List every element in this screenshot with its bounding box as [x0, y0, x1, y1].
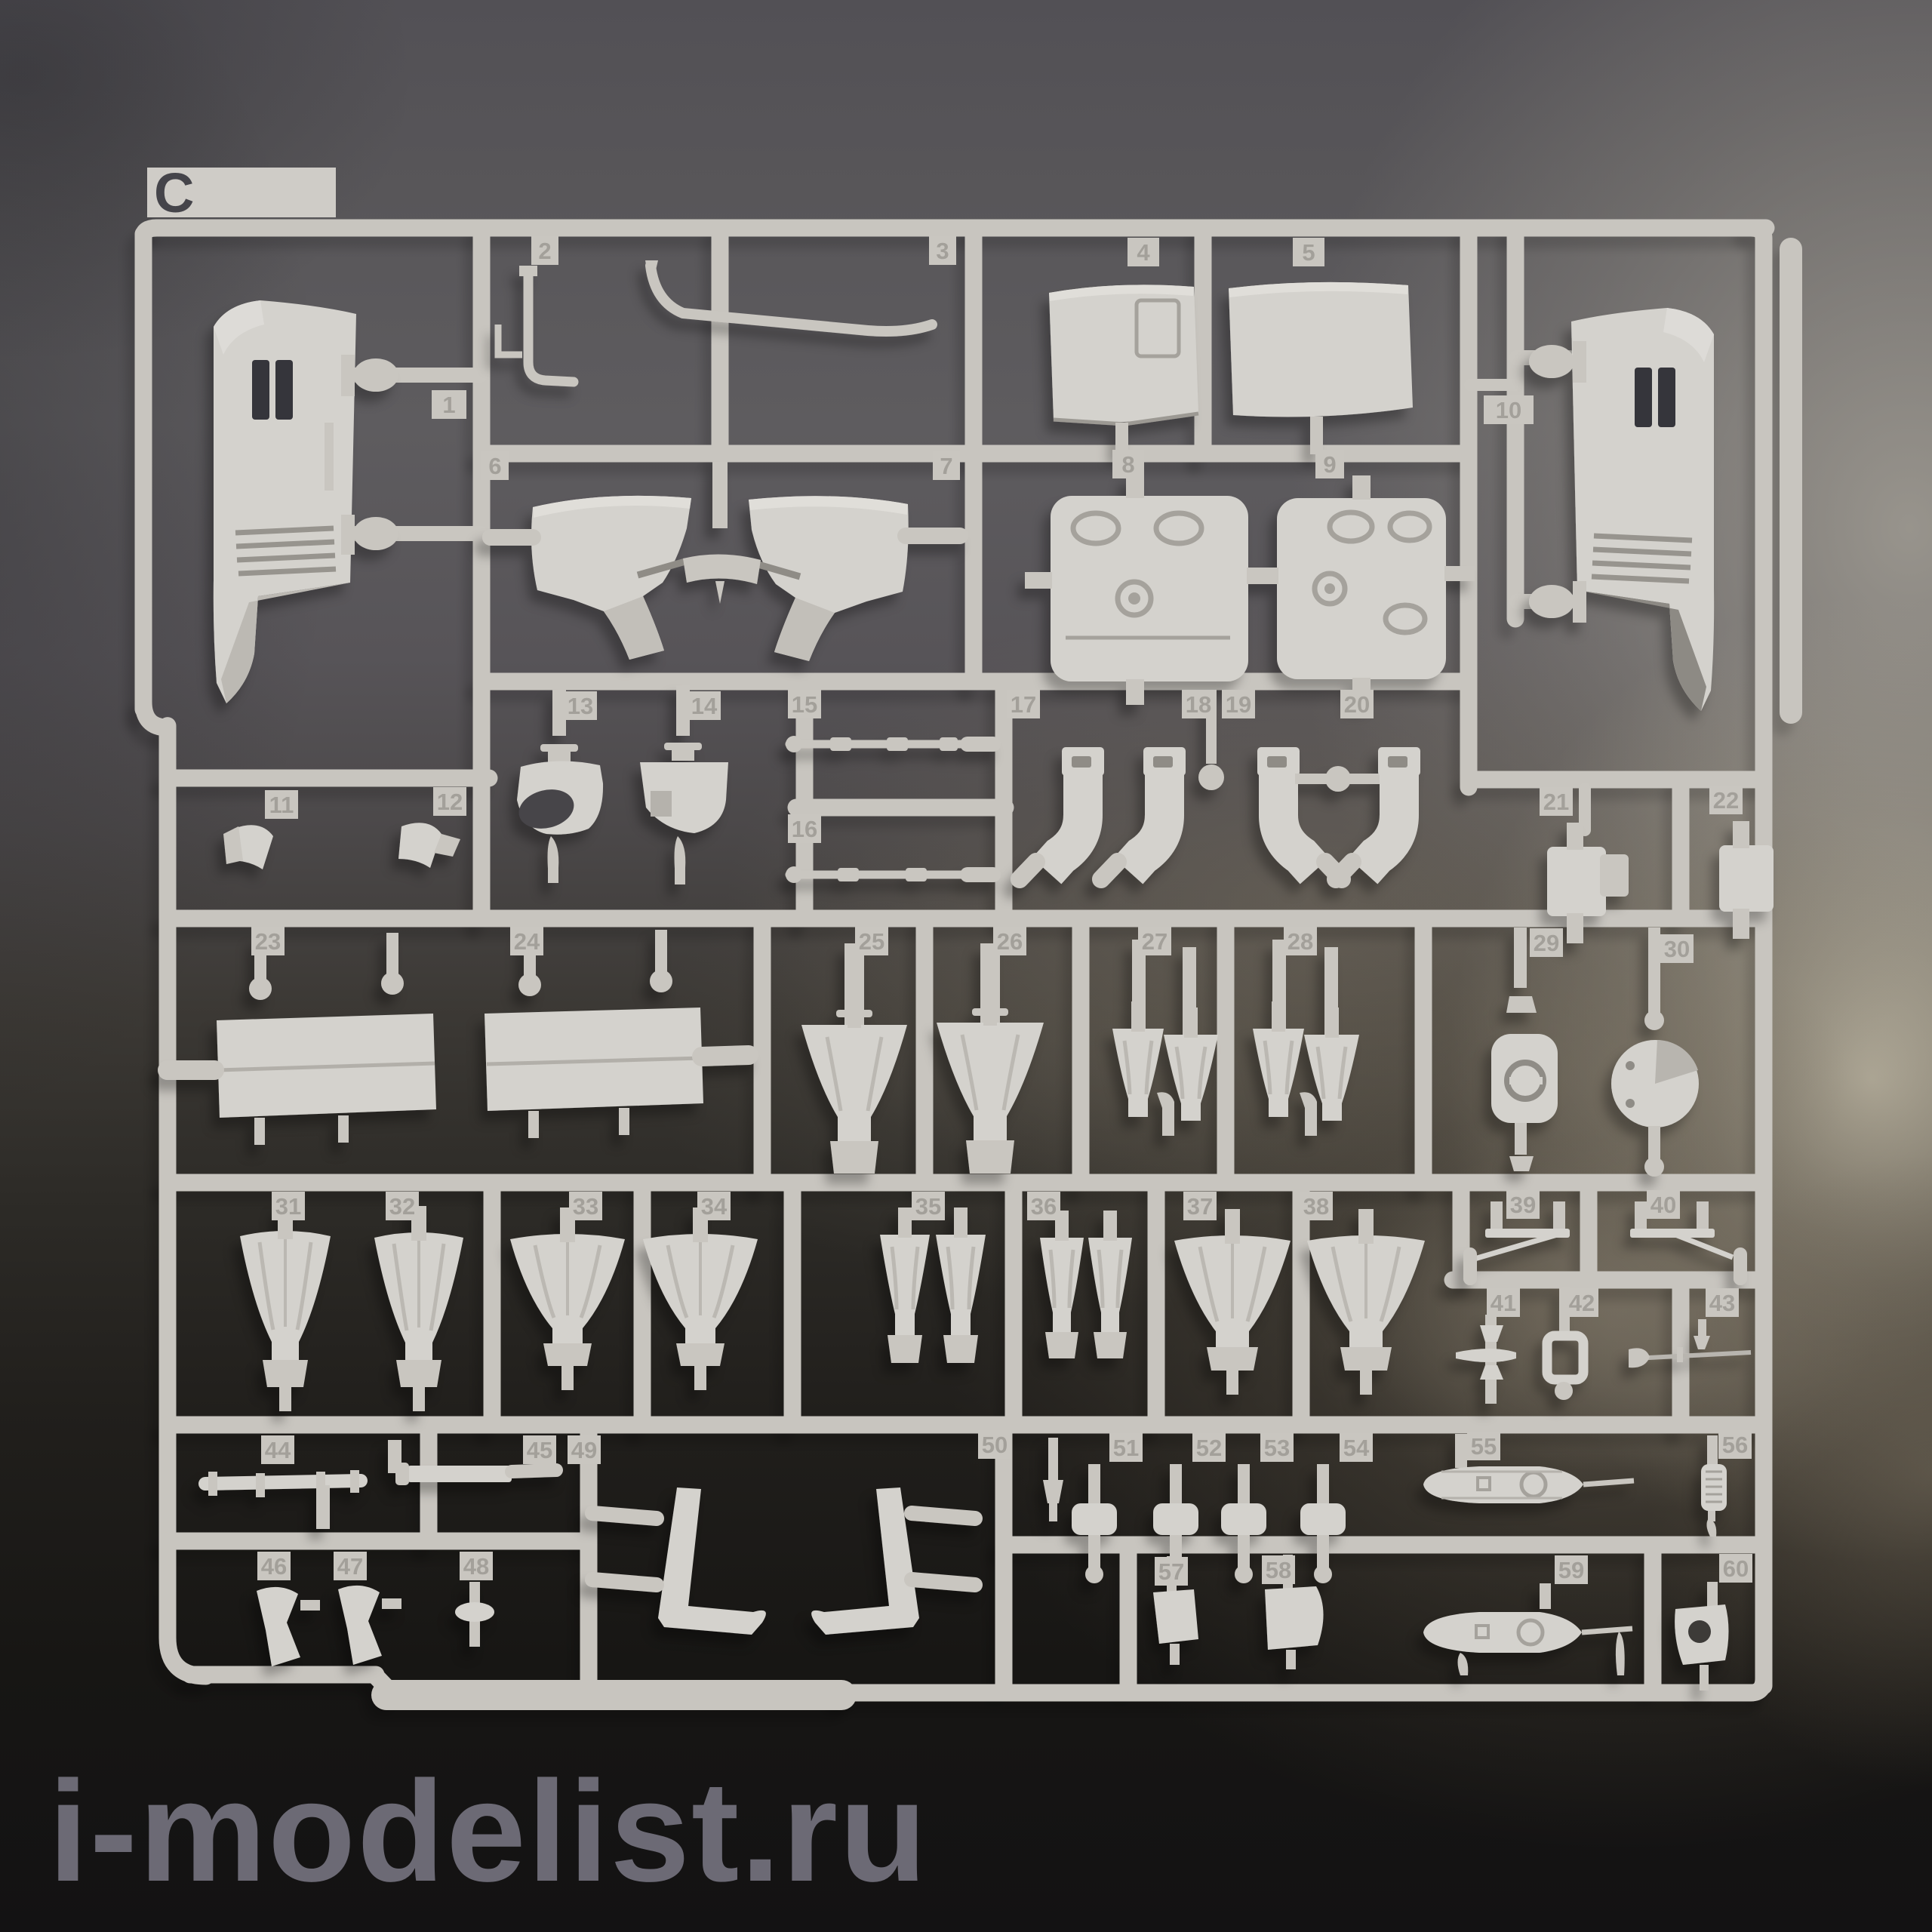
svg-text:5: 5	[1302, 239, 1315, 266]
svg-text:26: 26	[997, 928, 1023, 955]
svg-text:34: 34	[701, 1193, 728, 1220]
svg-text:44: 44	[265, 1437, 291, 1463]
svg-text:25: 25	[859, 928, 884, 955]
svg-text:28: 28	[1287, 928, 1313, 955]
svg-text:24: 24	[514, 928, 540, 955]
svg-text:59: 59	[1558, 1557, 1584, 1583]
svg-text:27: 27	[1142, 928, 1168, 955]
svg-text:58: 58	[1266, 1557, 1291, 1583]
svg-text:7: 7	[940, 453, 952, 479]
svg-text:53: 53	[1264, 1435, 1290, 1461]
svg-text:C: C	[154, 162, 194, 224]
svg-text:47: 47	[337, 1553, 363, 1580]
svg-text:48: 48	[463, 1553, 489, 1580]
svg-text:52: 52	[1196, 1435, 1222, 1461]
svg-text:19: 19	[1226, 691, 1251, 718]
svg-text:46: 46	[261, 1553, 287, 1580]
svg-text:30: 30	[1664, 936, 1690, 962]
svg-text:3: 3	[936, 238, 949, 264]
svg-text:i-modelist.ru: i-modelist.ru	[48, 1752, 928, 1912]
svg-text:55: 55	[1471, 1433, 1497, 1460]
svg-text:4: 4	[1137, 239, 1150, 266]
svg-text:37: 37	[1187, 1193, 1213, 1220]
svg-text:29: 29	[1534, 930, 1559, 956]
svg-text:57: 57	[1158, 1558, 1184, 1585]
svg-text:33: 33	[573, 1193, 598, 1220]
svg-text:60: 60	[1723, 1555, 1749, 1582]
svg-text:49: 49	[571, 1437, 597, 1463]
svg-text:20: 20	[1344, 691, 1370, 718]
svg-text:12: 12	[437, 789, 463, 815]
svg-text:17: 17	[1011, 691, 1036, 718]
svg-text:41: 41	[1491, 1290, 1516, 1316]
svg-text:51: 51	[1113, 1435, 1139, 1461]
svg-text:23: 23	[255, 928, 281, 955]
svg-text:16: 16	[792, 816, 817, 842]
svg-text:32: 32	[389, 1193, 415, 1220]
svg-text:8: 8	[1121, 451, 1134, 478]
svg-text:40: 40	[1651, 1192, 1676, 1218]
svg-text:9: 9	[1323, 451, 1336, 478]
svg-text:31: 31	[275, 1193, 301, 1220]
svg-text:6: 6	[488, 453, 501, 479]
svg-text:42: 42	[1569, 1290, 1595, 1316]
svg-text:1: 1	[442, 392, 455, 418]
svg-text:35: 35	[915, 1193, 941, 1220]
svg-text:36: 36	[1031, 1193, 1057, 1220]
svg-text:54: 54	[1343, 1435, 1370, 1461]
svg-text:56: 56	[1722, 1432, 1748, 1458]
svg-text:14: 14	[691, 693, 718, 719]
svg-text:18: 18	[1186, 691, 1211, 718]
svg-text:43: 43	[1709, 1290, 1735, 1316]
svg-text:39: 39	[1510, 1192, 1536, 1218]
svg-text:13: 13	[568, 693, 593, 719]
svg-text:38: 38	[1303, 1193, 1329, 1220]
svg-text:21: 21	[1543, 789, 1569, 815]
svg-text:45: 45	[527, 1437, 552, 1463]
svg-text:15: 15	[792, 691, 817, 718]
svg-text:10: 10	[1496, 397, 1521, 423]
svg-text:11: 11	[269, 792, 294, 818]
svg-text:50: 50	[982, 1432, 1008, 1458]
svg-text:2: 2	[538, 238, 551, 264]
svg-text:22: 22	[1713, 787, 1739, 814]
